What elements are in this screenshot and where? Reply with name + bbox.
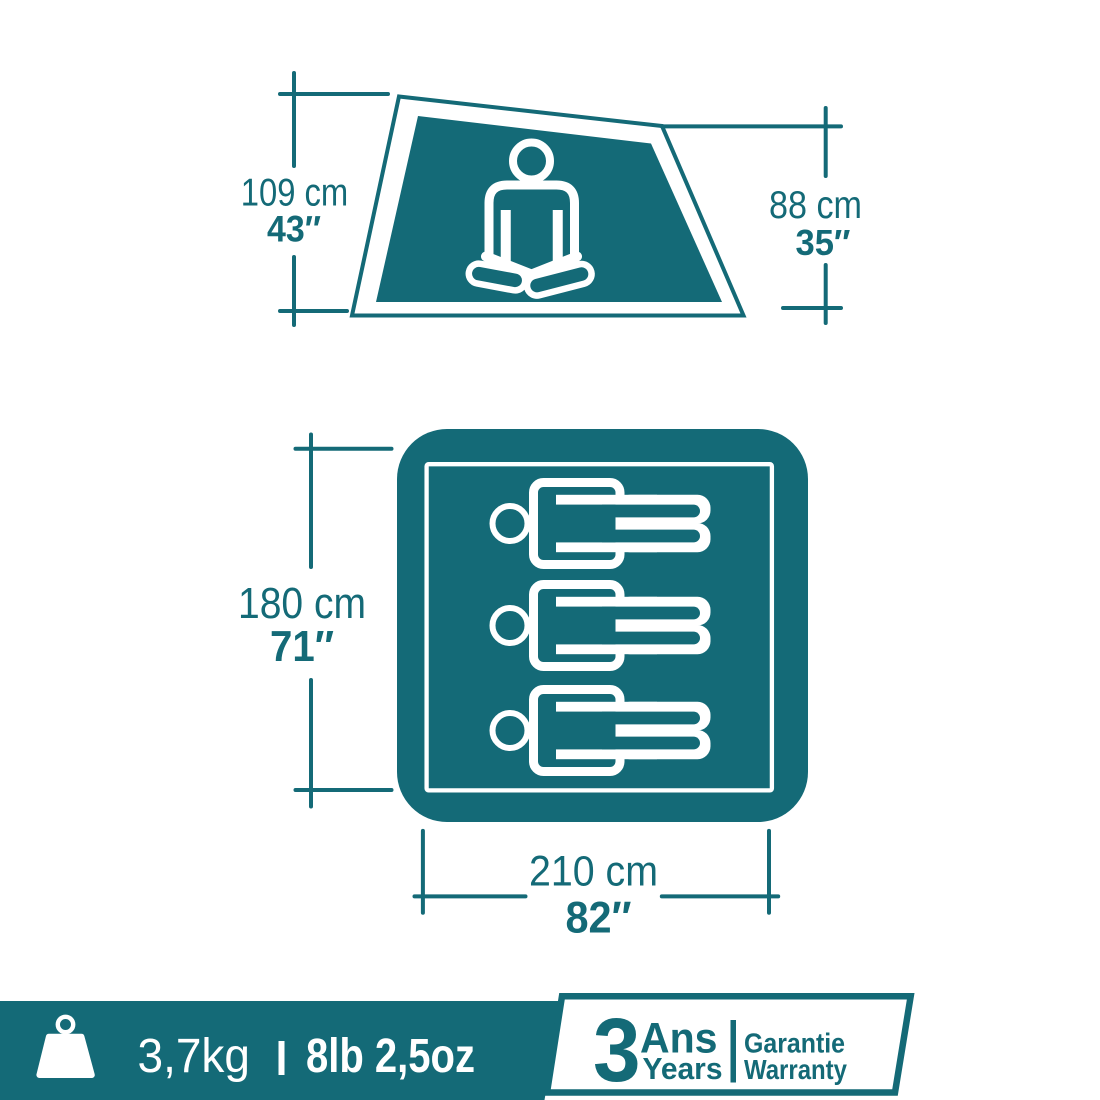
- svg-text:71″: 71″: [270, 622, 334, 671]
- svg-text:Years: Years: [643, 1051, 723, 1086]
- svg-text:88 cm: 88 cm: [769, 184, 862, 227]
- svg-text:82″: 82″: [566, 894, 632, 943]
- svg-text:180 cm: 180 cm: [238, 579, 366, 628]
- svg-text:43″: 43″: [267, 209, 321, 250]
- svg-text:35″: 35″: [796, 222, 851, 263]
- svg-text:Warranty: Warranty: [744, 1054, 848, 1085]
- svg-text:3,7kg: 3,7kg: [138, 1030, 251, 1083]
- svg-text:210 cm: 210 cm: [529, 849, 658, 896]
- svg-text:3: 3: [593, 1000, 641, 1100]
- svg-text:8lb 2,5oz: 8lb 2,5oz: [306, 1030, 475, 1083]
